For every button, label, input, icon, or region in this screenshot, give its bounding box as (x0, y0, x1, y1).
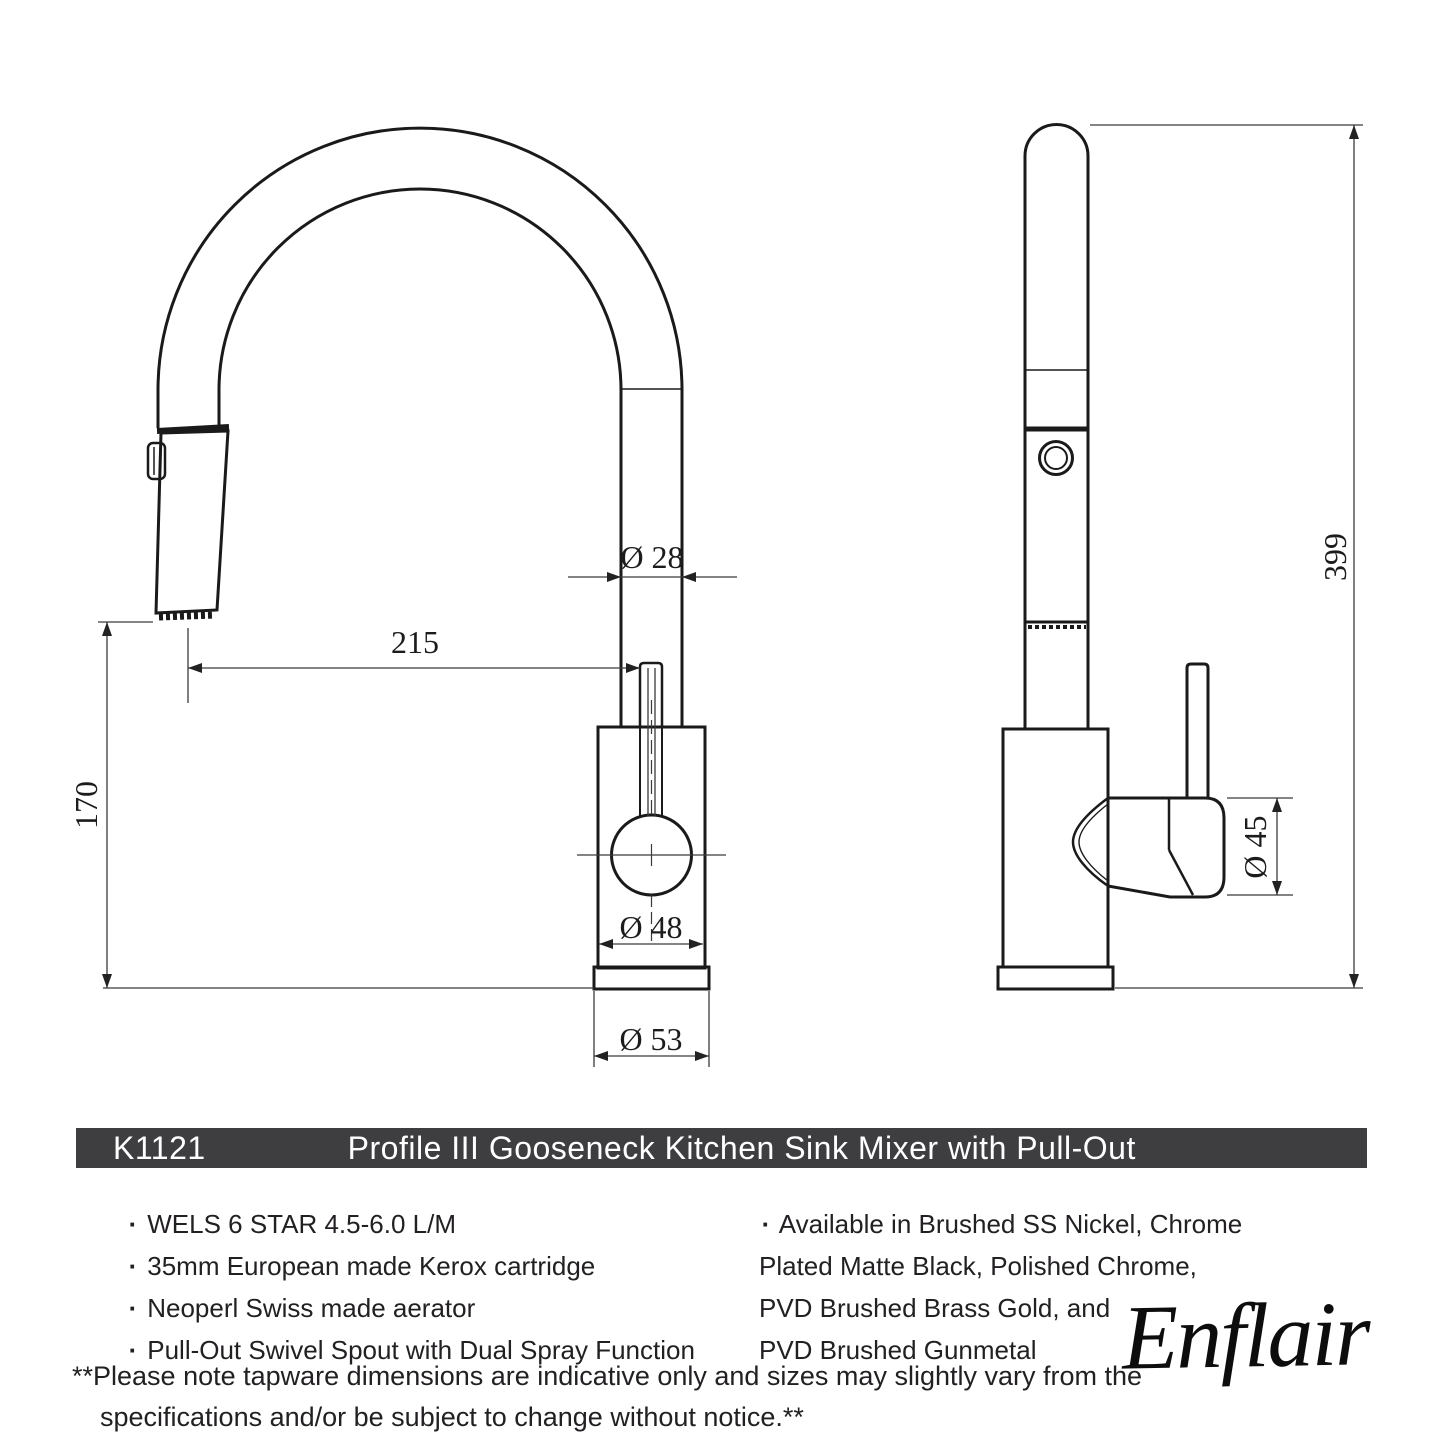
finish-line: · Available in Brushed SS Nickel, Chrome (759, 1203, 1242, 1245)
gooseneck-outer-arc (158, 128, 682, 390)
footnote-line: specifications and/or be subject to chan… (72, 1397, 1142, 1438)
product-code: K1121 (113, 1130, 206, 1167)
bullet: · (126, 1287, 140, 1329)
dim-spout-diameter: Ø 28 (620, 539, 683, 575)
footnote: **Please note tapware dimensions are ind… (72, 1356, 1142, 1438)
finish-text: Available in Brushed SS Nickel, Chrome (779, 1209, 1242, 1239)
spray-head-teeth (159, 615, 215, 617)
bullet: · (126, 1203, 140, 1245)
handle-cone-inner (1079, 804, 1108, 881)
dim-reach: 215 (391, 624, 439, 660)
base-plate-front (594, 967, 709, 989)
feature-text: WELS 6 STAR 4.5-6.0 L/M (147, 1209, 456, 1239)
feature-item: · Neoperl Swiss made aerator (126, 1287, 695, 1329)
dim-handle-diameter: Ø 45 (1237, 815, 1273, 878)
bullet: · (759, 1203, 773, 1245)
dim-base-diameter: Ø 53 (619, 1021, 682, 1057)
handle-capsule (1108, 798, 1224, 897)
dim-outlet-height: 170 (68, 781, 104, 829)
gooseneck-inner-arc (219, 189, 621, 390)
feature-text: Neoperl Swiss made aerator (147, 1293, 475, 1323)
spray-head-clip (148, 443, 165, 479)
dimensions (98, 125, 1363, 1067)
brand-logo: Enflair (1121, 1279, 1423, 1390)
feature-text: 35mm European made Kerox cartridge (147, 1251, 595, 1281)
technical-drawing: Ø 28 215 170 Ø 48 Ø 53 399 Ø 45 (0, 0, 1445, 1120)
features-list: · WELS 6 STAR 4.5-6.0 L/M · 35mm Europea… (126, 1203, 695, 1371)
bullet: · (126, 1245, 140, 1287)
footnote-line: **Please note tapware dimensions are ind… (72, 1356, 1142, 1397)
base-plate-side (998, 967, 1113, 989)
spray-button-inner (1045, 447, 1067, 469)
spray-head (156, 431, 228, 613)
product-title: Profile III Gooseneck Kitchen Sink Mixer… (348, 1130, 1136, 1167)
dim-total-height: 399 (1317, 533, 1353, 581)
finish-line: Plated Matte Black, Polished Chrome, (759, 1245, 1242, 1287)
title-bar: K1121 Profile III Gooseneck Kitchen Sink… (76, 1128, 1367, 1168)
mixer-body-side (1003, 729, 1108, 967)
handle-cone-outer (1073, 798, 1108, 886)
dim-body-diameter: Ø 48 (619, 909, 682, 945)
feature-item: · 35mm European made Kerox cartridge (126, 1245, 695, 1287)
handle-rod-front (640, 663, 662, 727)
spec-sheet: Ø 28 215 170 Ø 48 Ø 53 399 Ø 45 K1121 Pr… (0, 0, 1445, 1445)
handle-lever (1187, 664, 1208, 798)
feature-item: · WELS 6 STAR 4.5-6.0 L/M (126, 1203, 695, 1245)
side-view (998, 125, 1224, 990)
